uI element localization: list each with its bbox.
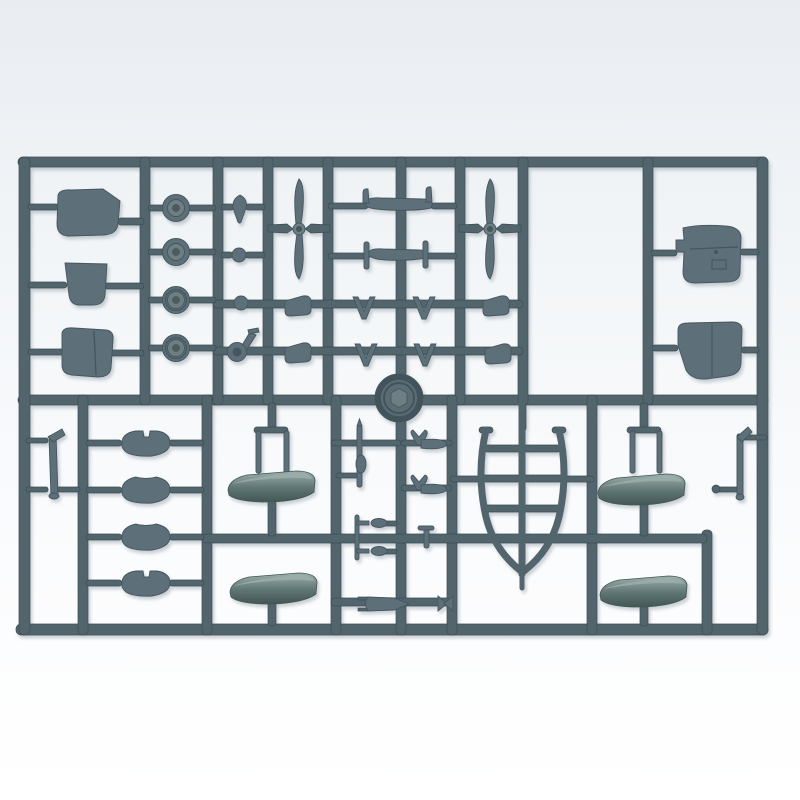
hatch-panel-1 [57, 189, 120, 236]
top-rail [18, 157, 768, 167]
bottom-rail [16, 624, 768, 635]
right-edge [757, 157, 768, 635]
access-panel-upper [676, 225, 741, 283]
hatch-panel-3 [62, 328, 113, 377]
sprue-photo-svg [0, 0, 800, 800]
small-ball-1 [232, 248, 246, 262]
access-panel-lower [678, 322, 742, 379]
hatch-panel-2 [65, 263, 107, 305]
small-ball-2 [234, 296, 248, 310]
propeller-right [484, 179, 496, 279]
propeller-left [293, 179, 305, 279]
sprue-photo [0, 0, 800, 800]
left-edge [19, 157, 30, 635]
main-wheel [375, 374, 423, 422]
